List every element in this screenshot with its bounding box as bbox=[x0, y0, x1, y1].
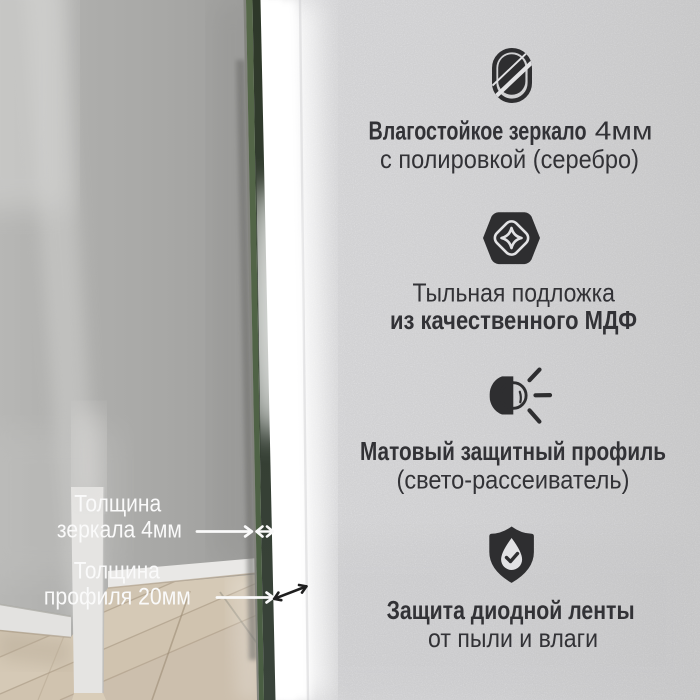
svg-text:из качественного МДФ: из качественного МДФ bbox=[390, 305, 637, 335]
svg-text:Толщина: Толщина bbox=[74, 557, 161, 584]
svg-text:зеркала 4мм: зеркала 4мм bbox=[57, 517, 182, 544]
svg-text:от пыли и влаги: от пыли и влаги bbox=[428, 623, 598, 653]
svg-text:с полировкой (серебро): с полировкой (серебро) bbox=[380, 144, 639, 174]
svg-text:Защита диодной ленты: Защита диодной ленты bbox=[387, 595, 635, 625]
svg-text:Влагостойкое зеркало 4мм: Влагостойкое зеркало 4мм bbox=[369, 116, 653, 146]
svg-text:Толщина: Толщина bbox=[74, 490, 162, 517]
svg-text:(свето-рассеиватель): (свето-рассеиватель) bbox=[397, 465, 630, 495]
svg-text:профиля 20мм: профиля 20мм bbox=[44, 584, 191, 611]
svg-text:Матовый защитный профиль: Матовый защитный профиль bbox=[360, 436, 666, 466]
svg-text:Тыльная подложка: Тыльная подложка bbox=[412, 278, 615, 308]
